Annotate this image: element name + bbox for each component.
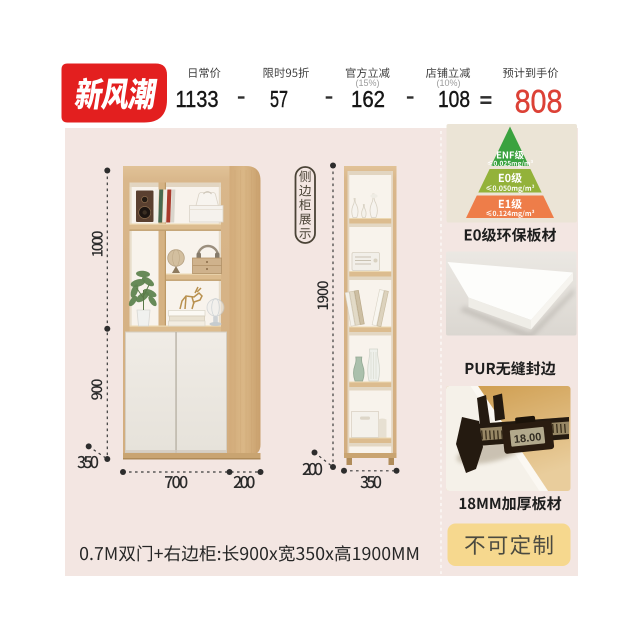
svg-text:1133: 1133 bbox=[176, 86, 219, 112]
svg-text:162: 162 bbox=[351, 86, 385, 112]
svg-text:57: 57 bbox=[270, 86, 288, 112]
svg-text:108: 108 bbox=[438, 86, 470, 112]
svg-text:808: 808 bbox=[515, 84, 563, 120]
